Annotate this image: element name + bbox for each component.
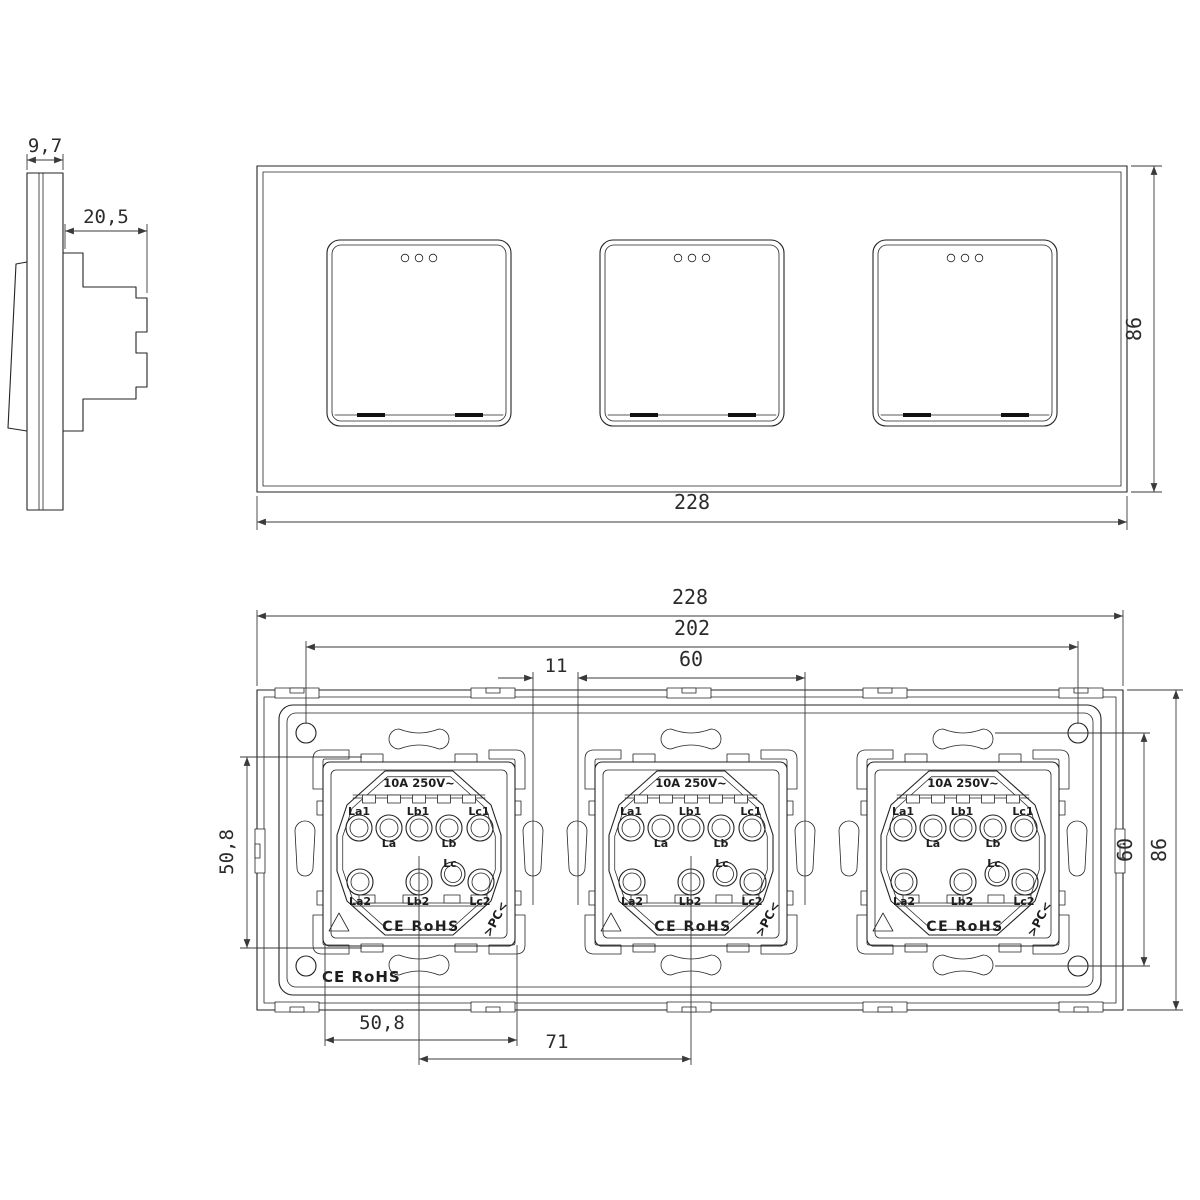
dim-slot-span-vertical: 50,8 (216, 757, 362, 948)
back-view: CE RoHS 228 202 60 (216, 585, 1183, 1065)
dim-label: 228 (672, 585, 708, 609)
screw-hole (296, 723, 316, 743)
dim-label: 71 (546, 1031, 569, 1053)
mounting-keyhole (295, 821, 315, 876)
mounting-keyhole (839, 821, 859, 876)
frame-clip (471, 688, 515, 698)
dim-front-width: 228 (257, 490, 1127, 530)
dim-label: 60 (1113, 838, 1137, 862)
dim-side-mount-depth: 20,5 (65, 206, 147, 293)
dim-label: 50,8 (216, 829, 238, 875)
frame-clip (275, 1002, 319, 1012)
frame-clip (1059, 1002, 1103, 1012)
mount-box-profile (63, 253, 147, 431)
technical-drawing-page: 10A 250V~ La1 Lb1 Lc1 La Lb Lc La2 Lb2 L… (0, 0, 1200, 1200)
screw-hole (296, 956, 316, 976)
frame-clip (275, 688, 319, 698)
dim-label: 202 (674, 616, 710, 640)
frame-inner (279, 705, 1101, 995)
alignment-slot (933, 955, 993, 975)
dim-module-width: 60 (578, 647, 805, 678)
dim-label: 9,7 (28, 135, 62, 157)
glass-panel (257, 166, 1127, 492)
dim-label: 11 (545, 655, 568, 677)
frame-ce-rohs-marking: CE RoHS (322, 968, 401, 986)
frame-clip (255, 829, 265, 873)
mounting-keyhole (1067, 821, 1087, 876)
alignment-slot (933, 729, 993, 749)
dim-label: 20,5 (83, 206, 129, 228)
dim-side-front-thickness: 9,7 (27, 135, 63, 170)
alignment-slot (389, 729, 449, 749)
dim-label: 60 (679, 647, 703, 671)
frame-clip (471, 1002, 515, 1012)
dim-module-gap: 11 (498, 655, 613, 678)
dim-front-height: 86 (1122, 166, 1162, 492)
frame-clip (1059, 688, 1103, 698)
frame-clip (667, 1002, 711, 1012)
mounting-keyhole (567, 821, 587, 876)
front-view: 228 86 (257, 166, 1162, 530)
dim-module-center-distance: 71 (419, 1031, 691, 1059)
side-view: 9,7 20,5 (8, 135, 147, 510)
triple-switch-drawing: 10A 250V~ La1 Lb1 Lc1 La Lb Lc La2 Lb2 L… (0, 0, 1200, 1200)
dim-label: 228 (674, 490, 710, 514)
dim-label: 86 (1147, 838, 1171, 862)
alignment-slot (661, 729, 721, 749)
frame-clip (863, 688, 907, 698)
dim-label: 50,8 (359, 1012, 405, 1034)
frame-clip (863, 1002, 907, 1012)
frame-clip (667, 688, 711, 698)
dim-label: 86 (1122, 317, 1146, 341)
rocker-profile (8, 262, 27, 431)
